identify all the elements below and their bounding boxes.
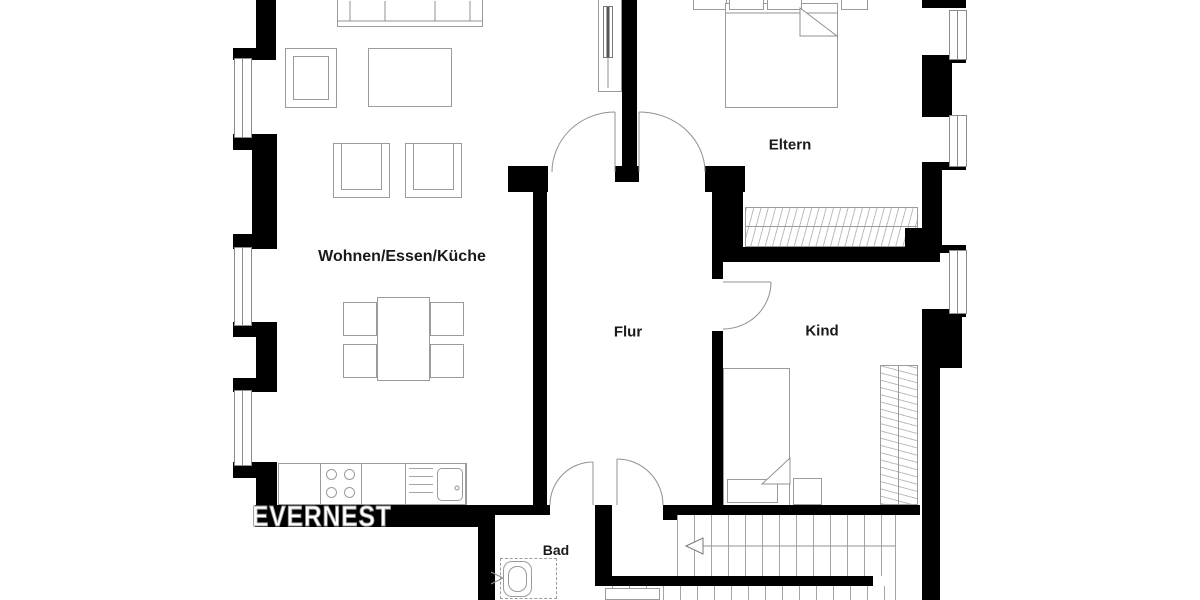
nightstand xyxy=(693,0,727,10)
wall xyxy=(622,0,637,168)
door-arc xyxy=(550,462,593,505)
wall xyxy=(478,515,495,600)
stove-burner xyxy=(326,487,337,498)
floor-plan: Wohnen/Essen/Küche Eltern Flur Kind Bad … xyxy=(0,0,1200,600)
stove-burner xyxy=(344,487,355,498)
room-label-child: Kind xyxy=(805,323,838,340)
wall xyxy=(922,0,966,8)
bed-parents xyxy=(725,3,838,108)
window xyxy=(949,10,967,60)
stairs-upper xyxy=(677,515,895,576)
dining-table xyxy=(377,297,430,381)
dining-chair xyxy=(343,344,377,378)
wall xyxy=(595,505,612,586)
wall xyxy=(533,192,547,505)
radiator xyxy=(603,6,613,58)
wardrobe-child xyxy=(880,365,918,505)
nightstand xyxy=(793,478,822,505)
wall xyxy=(478,505,550,515)
wall xyxy=(922,314,962,368)
dining-chair xyxy=(343,302,377,336)
wall xyxy=(663,505,677,520)
wall xyxy=(712,247,920,262)
wall xyxy=(508,166,548,192)
washbasin-inner xyxy=(508,566,527,592)
wall xyxy=(712,260,723,279)
dining-chair xyxy=(430,302,464,336)
stairs-edge xyxy=(895,515,896,600)
room-label-hall: Flur xyxy=(614,324,642,341)
door-arc xyxy=(552,112,615,172)
stove xyxy=(320,463,362,505)
wall xyxy=(256,0,276,52)
window xyxy=(234,390,252,466)
dining-chair xyxy=(430,344,464,378)
room-label-living: Wohnen/Essen/Küche xyxy=(318,248,486,266)
stairs-landing xyxy=(605,588,660,600)
stove-burner xyxy=(344,469,355,480)
armchair-inner xyxy=(293,56,329,100)
window xyxy=(949,250,967,314)
coffee-table xyxy=(368,48,452,107)
window xyxy=(234,247,252,326)
sink-basin xyxy=(437,468,463,501)
door-arc xyxy=(723,282,771,329)
wardrobe-parents xyxy=(745,207,918,247)
room-label-bath: Bad xyxy=(543,542,569,558)
wall xyxy=(922,60,952,117)
nightstand xyxy=(841,0,868,10)
wall xyxy=(712,331,723,513)
door-arc xyxy=(639,112,705,172)
door-arc xyxy=(617,459,663,505)
wall xyxy=(615,166,639,182)
armchair-inner xyxy=(341,143,382,190)
pillow xyxy=(767,0,802,10)
wall xyxy=(256,337,277,382)
pillow xyxy=(729,0,764,10)
wall xyxy=(922,366,940,600)
sofa xyxy=(337,0,483,27)
window xyxy=(949,115,967,167)
window xyxy=(234,58,252,138)
wall xyxy=(605,576,873,586)
wall xyxy=(663,505,920,515)
stove-burner xyxy=(326,469,337,480)
armchair-inner xyxy=(413,143,454,190)
watermark: EVERNEST xyxy=(252,501,392,534)
pillow xyxy=(727,479,778,503)
room-label-parents: Eltern xyxy=(769,137,812,154)
sink-drainer xyxy=(409,468,433,500)
wall xyxy=(252,150,277,244)
